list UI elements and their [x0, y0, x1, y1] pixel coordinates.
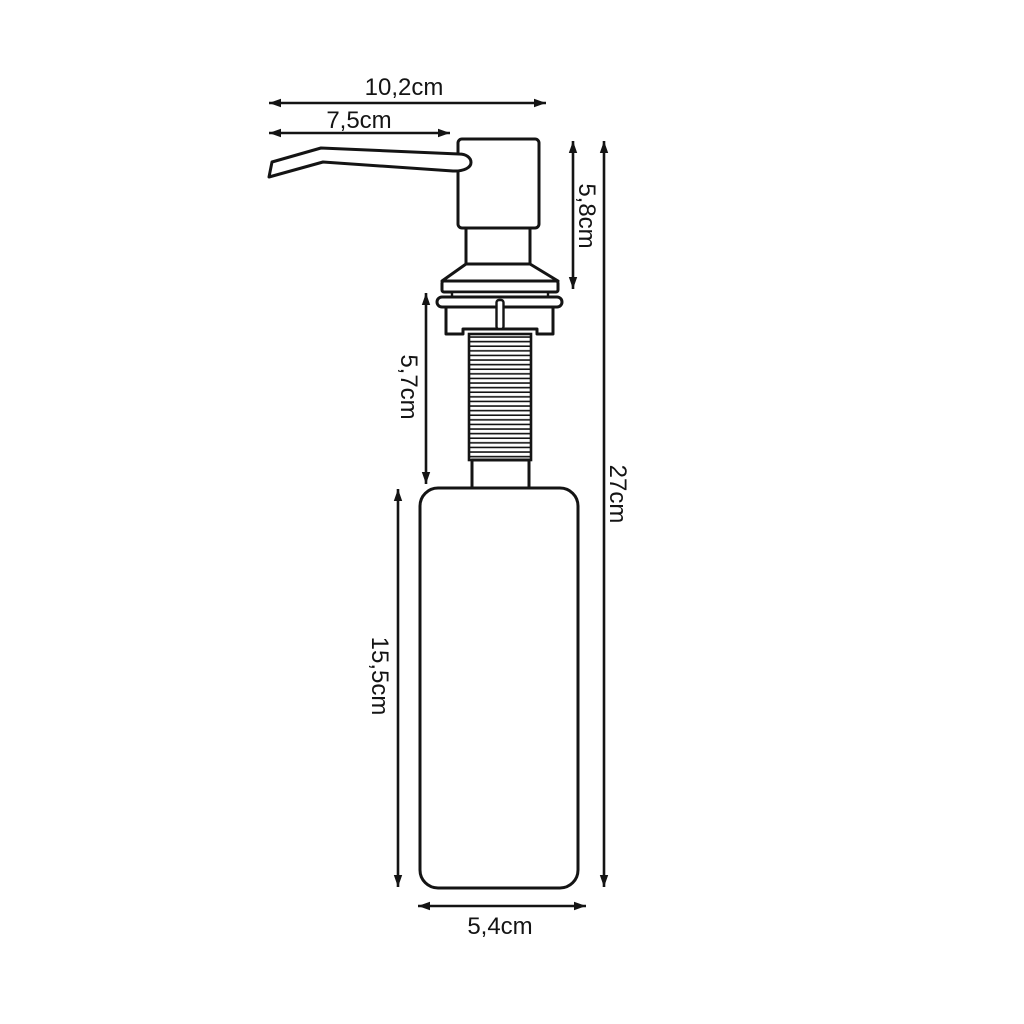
pump-tube: [497, 300, 504, 329]
flange-cone: [442, 264, 558, 281]
dimension-label-bottle-height: 15,5cm: [366, 637, 393, 716]
flange-rim: [442, 281, 558, 292]
dimension-label-bottle-width: 5,4cm: [467, 913, 532, 940]
suction-tube: [472, 460, 529, 489]
neck: [466, 228, 530, 264]
dimension-thread-section: 5,7cm: [395, 293, 426, 484]
dimension-label-spout-length: 7,5cm: [326, 107, 391, 134]
dimension-label-overall-height: 27cm: [604, 465, 631, 524]
pump-head: [458, 139, 539, 228]
dimension-label-thread-section: 5,7cm: [395, 354, 422, 419]
dimension-bottle-height: 15,5cm: [366, 489, 398, 887]
spout: [269, 148, 471, 177]
dimension-overall-height: 27cm: [604, 141, 631, 887]
dimension-pump-head-height: 5,8cm: [573, 141, 600, 289]
dimension-spout-length: 7,5cm: [269, 107, 450, 134]
dimension-label-pump-head-height: 5,8cm: [573, 183, 600, 248]
dispenser-drawing: [269, 139, 578, 888]
dimension-bottle-width: 5,4cm: [418, 906, 586, 940]
dimension-total-spout-width: 10,2cm: [269, 74, 546, 103]
bottle: [420, 488, 578, 888]
threaded-shaft: [469, 334, 531, 460]
dimension-label-total-spout-width: 10,2cm: [365, 74, 444, 101]
soap-dispenser-dimension-diagram: 10,2cm 7,5cm 5,8cm 27cm 5,7cm: [0, 0, 1024, 1024]
dimension-diagram-page: 10,2cm 7,5cm 5,8cm 27cm 5,7cm: [0, 0, 1024, 1024]
